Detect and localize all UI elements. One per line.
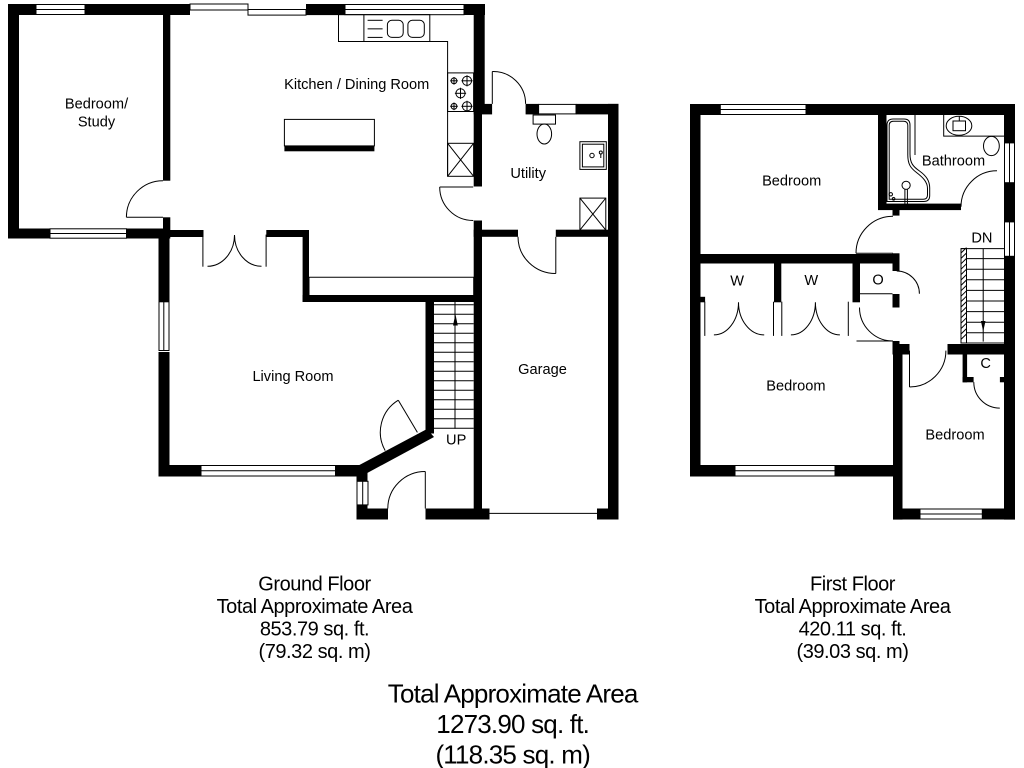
svg-text:Kitchen / Dining Room: Kitchen / Dining Room — [284, 77, 429, 93]
svg-text:First Floor: First Floor — [810, 573, 896, 595]
svg-text:1273.90 sq. ft.: 1273.90 sq. ft. — [436, 709, 589, 739]
svg-text:C: C — [980, 356, 991, 372]
svg-text:Ground Floor: Ground Floor — [258, 573, 371, 595]
svg-text:Total Approximate Area: Total Approximate Area — [388, 679, 639, 709]
svg-text:Study: Study — [78, 114, 116, 130]
svg-text:Total Approximate Area: Total Approximate Area — [755, 596, 952, 618]
svg-text:UP: UP — [446, 432, 466, 448]
svg-text:DN: DN — [971, 230, 992, 246]
svg-text:Bedroom: Bedroom — [925, 428, 984, 444]
svg-text:W: W — [804, 273, 818, 289]
svg-text:Utility: Utility — [510, 166, 546, 182]
svg-text:Bedroom/: Bedroom/ — [65, 97, 129, 113]
svg-text:420.11 sq. ft.: 420.11 sq. ft. — [799, 619, 907, 641]
svg-text:(118.35 sq. m): (118.35 sq. m) — [435, 740, 590, 768]
svg-text:Bedroom: Bedroom — [762, 173, 821, 189]
svg-text:(79.32 sq. m): (79.32 sq. m) — [259, 641, 371, 663]
svg-text:(39.03 sq. m): (39.03 sq. m) — [797, 641, 909, 663]
svg-text:Living Room: Living Room — [252, 369, 333, 385]
svg-text:Garage: Garage — [518, 362, 567, 378]
svg-text:853.79 sq. ft.: 853.79 sq. ft. — [260, 619, 369, 641]
svg-text:W: W — [730, 273, 744, 289]
svg-text:O: O — [872, 273, 883, 289]
svg-text:Bathroom: Bathroom — [922, 154, 985, 170]
svg-text:Bedroom: Bedroom — [766, 378, 825, 394]
svg-text:Total Approximate Area: Total Approximate Area — [217, 596, 414, 618]
